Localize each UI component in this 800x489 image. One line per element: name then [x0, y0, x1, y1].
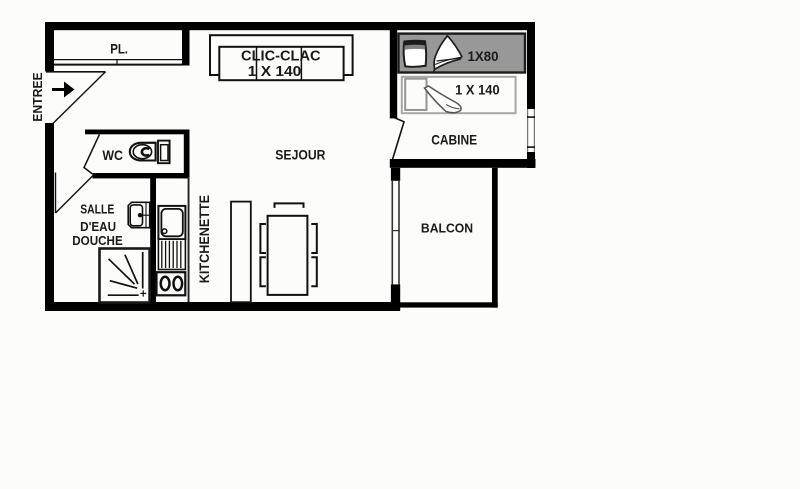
svg-text:BALCON: BALCON: [421, 220, 473, 235]
svg-text:1X80: 1X80: [468, 48, 499, 64]
svg-text:1 X 140: 1 X 140: [455, 82, 500, 98]
svg-text:SEJOUR: SEJOUR: [275, 148, 325, 163]
svg-text:D'EAU: D'EAU: [80, 219, 116, 234]
svg-text:WC: WC: [102, 148, 123, 163]
svg-text:PL.: PL.: [110, 41, 128, 57]
svg-text:CLIC-CLAC: CLIC-CLAC: [241, 49, 321, 65]
svg-text:KITCHENETTE: KITCHENETTE: [197, 195, 212, 283]
svg-text:1 X 140: 1 X 140: [248, 64, 302, 80]
svg-text:ENTREE: ENTREE: [30, 72, 45, 122]
svg-text:DOUCHE: DOUCHE: [72, 233, 123, 248]
svg-text:CABINE: CABINE: [431, 132, 477, 148]
svg-text:SALLE: SALLE: [80, 202, 114, 217]
